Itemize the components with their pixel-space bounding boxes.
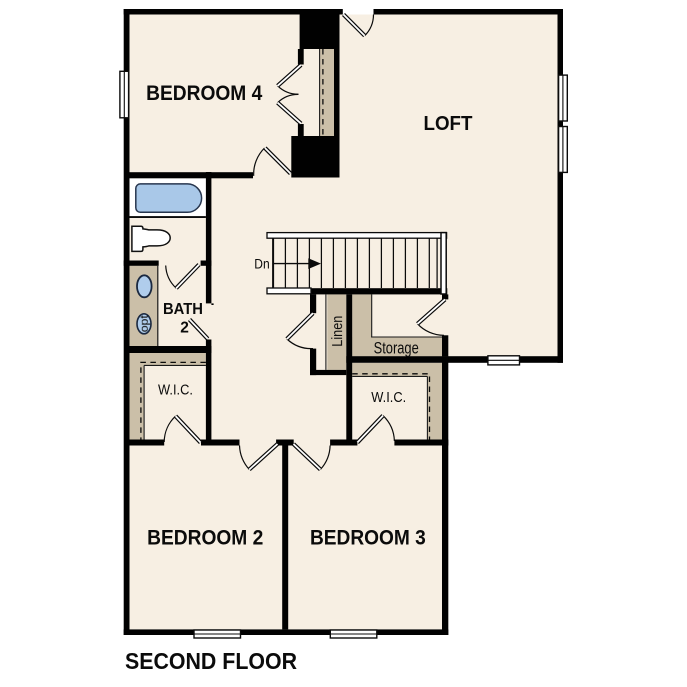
- svg-text:Linen: Linen: [330, 316, 346, 347]
- svg-text:Storage: Storage: [374, 339, 419, 357]
- svg-text:BATH: BATH: [163, 301, 203, 318]
- svg-text:W.I.C.: W.I.C.: [371, 390, 406, 406]
- svg-text:opt: opt: [139, 315, 151, 332]
- svg-text:Dn: Dn: [254, 256, 269, 272]
- svg-text:BEDROOM 4: BEDROOM 4: [146, 81, 262, 105]
- svg-text:LOFT: LOFT: [424, 113, 473, 135]
- svg-text:W.I.C.: W.I.C.: [158, 383, 193, 399]
- svg-text:2: 2: [180, 320, 189, 337]
- svg-text:BEDROOM 3: BEDROOM 3: [310, 525, 426, 549]
- svg-text:BEDROOM 2: BEDROOM 2: [147, 525, 263, 549]
- svg-text:SECOND FLOOR: SECOND FLOOR: [125, 648, 297, 674]
